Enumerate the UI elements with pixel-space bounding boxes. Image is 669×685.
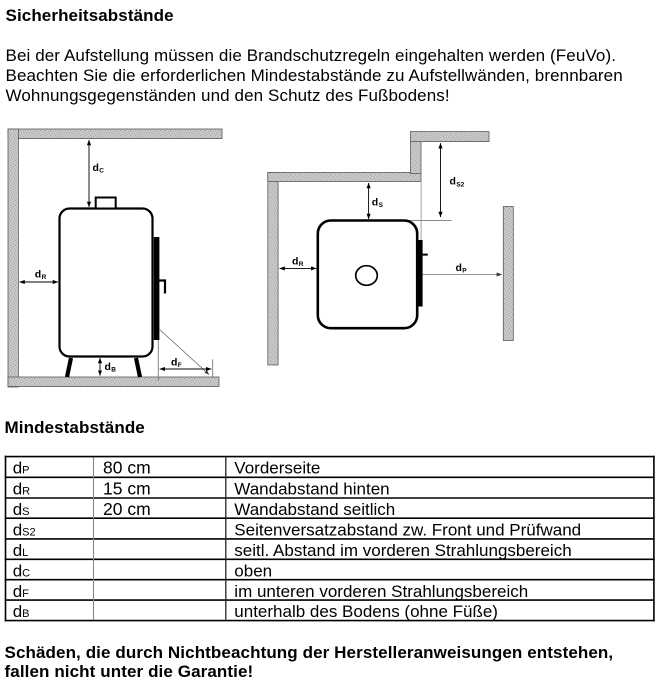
- svg-text:unterhalb des Bodens (ohne Füß: unterhalb des Bodens (ohne Füße): [234, 602, 498, 621]
- svg-text:C: C: [99, 168, 104, 175]
- svg-text:dS: dS: [13, 500, 30, 519]
- svg-text:d: d: [105, 361, 111, 373]
- svg-text:Seitenversatzabstand zw. Front: Seitenversatzabstand zw. Front und Prüfw…: [234, 520, 581, 539]
- svg-text:dR: dR: [13, 479, 30, 498]
- svg-text:d: d: [372, 197, 378, 209]
- svg-text:R: R: [42, 274, 47, 281]
- svg-text:d: d: [171, 357, 177, 369]
- svg-text:d: d: [292, 256, 298, 268]
- svg-text:dC: dC: [13, 561, 30, 580]
- svg-text:15 cm: 15 cm: [103, 478, 151, 498]
- svg-text:Wandabstand seitlich: Wandabstand seitlich: [234, 500, 395, 519]
- svg-text:F: F: [178, 362, 182, 369]
- svg-text:seitl. Abstand im vorderen Str: seitl. Abstand im vorderen Strahlungsber…: [234, 541, 571, 560]
- svg-text:dF: dF: [13, 582, 29, 601]
- svg-text:S: S: [379, 202, 384, 209]
- svg-text:20 cm: 20 cm: [103, 499, 151, 519]
- svg-text:Vorderseite: Vorderseite: [234, 459, 320, 478]
- svg-text:P: P: [462, 268, 467, 275]
- svg-text:R: R: [299, 261, 304, 268]
- svg-text:B: B: [111, 367, 116, 374]
- svg-text:dB: dB: [13, 602, 30, 621]
- svg-text:80 cm: 80 cm: [103, 458, 151, 478]
- svg-text:im unteren vorderen Strahlungs: im unteren vorderen Strahlungsbereich: [234, 582, 528, 601]
- svg-text:d: d: [450, 176, 456, 188]
- svg-text:oben: oben: [234, 561, 272, 580]
- svg-text:Wandabstand hinten: Wandabstand hinten: [234, 479, 389, 498]
- svg-text:dL: dL: [13, 541, 29, 560]
- svg-text:S2: S2: [456, 182, 464, 189]
- svg-text:dP: dP: [13, 459, 30, 478]
- svg-text:d: d: [35, 269, 41, 281]
- svg-text:dS2: dS2: [13, 520, 36, 539]
- svg-text:d: d: [93, 162, 99, 174]
- svg-text:d: d: [456, 262, 462, 274]
